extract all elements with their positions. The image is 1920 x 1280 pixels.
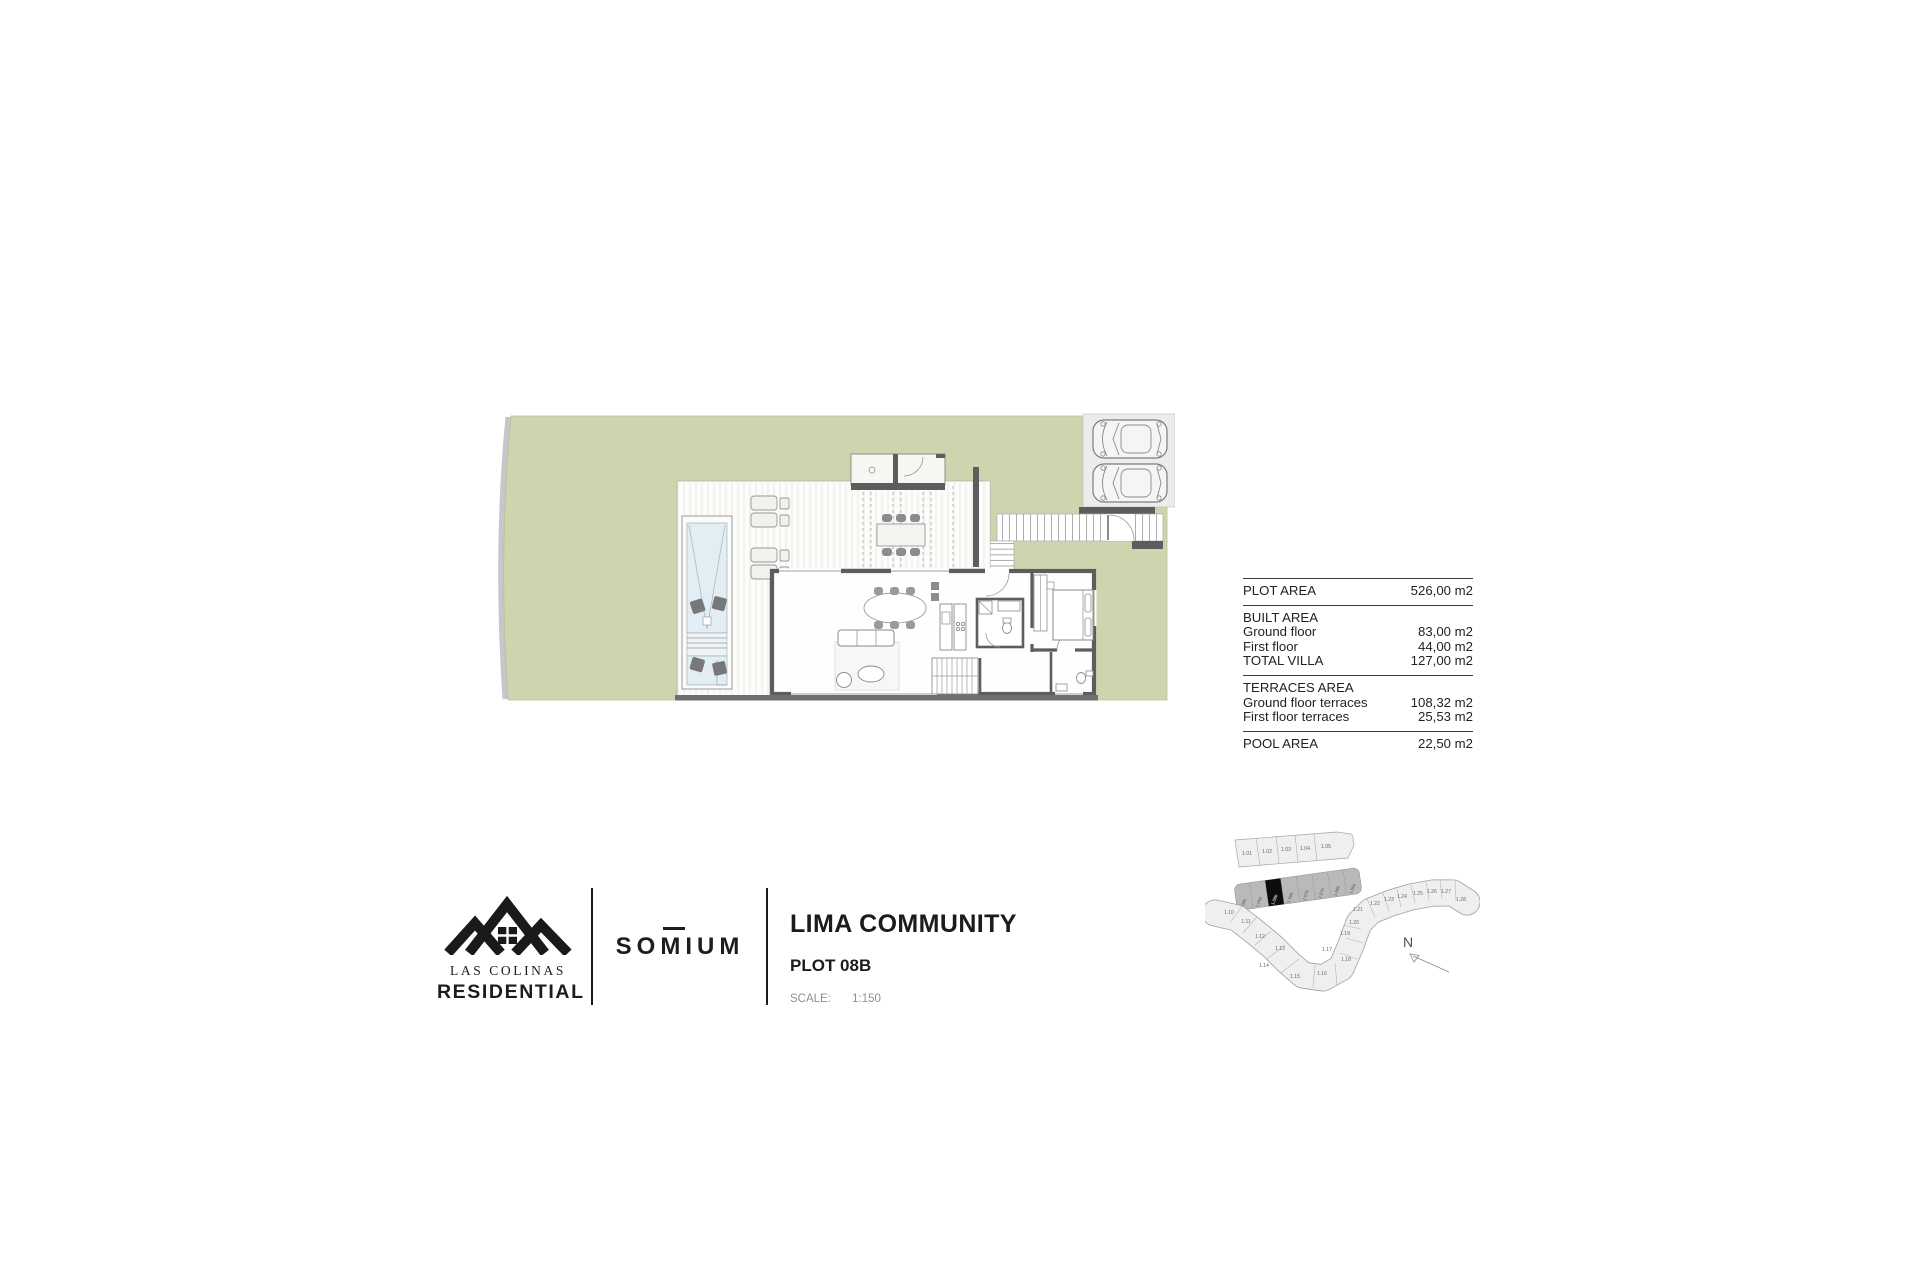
table-section-pool: POOL AREA 22,50 m2: [1243, 731, 1473, 758]
plot-label: 1.10: [1224, 910, 1234, 916]
row-value: 44,00 m2: [1418, 640, 1473, 655]
table-row: First floor terraces 25,53 m2: [1243, 710, 1473, 725]
plot-label: 1.26: [1427, 889, 1437, 895]
row-label: TERRACES AREA: [1243, 681, 1354, 696]
brand-las-colinas: LAS COLINAS: [437, 963, 579, 979]
plot-label: 1.11: [1241, 919, 1251, 925]
row-label: PLOT AREA: [1243, 584, 1316, 599]
plot-label: 1.25: [1413, 891, 1423, 897]
floor-plan: [495, 412, 1175, 704]
brand-residential: RESIDENTIAL: [437, 981, 579, 1004]
row-label: TOTAL VILLA: [1243, 654, 1323, 669]
plot-label: 1.21: [1353, 907, 1363, 913]
las-colinas-logo: LAS COLINAS RESIDENTIAL: [437, 891, 579, 1004]
north-arrow-icon: N: [1403, 934, 1449, 972]
outdoor-dining-set: [877, 514, 925, 556]
plot-label: 1.23: [1384, 897, 1394, 903]
stairs: [932, 658, 978, 694]
plot-label: 1.03: [1281, 847, 1291, 853]
table-row: Ground floor 83,00 m2: [1243, 625, 1473, 640]
house: [770, 569, 1097, 697]
row-value: 127,00 m2: [1411, 654, 1473, 669]
living-room-furniture: [835, 630, 899, 690]
somium-logo: SOMIUM: [600, 888, 760, 1005]
privacy-wall: [973, 467, 979, 567]
plot-label: 1.15: [1290, 974, 1300, 980]
table-row: TOTAL VILLA 127,00 m2: [1243, 654, 1473, 669]
row-label: Ground floor: [1243, 625, 1316, 640]
parking-area: [1083, 414, 1175, 507]
scale-row: SCALE: 1:150: [790, 993, 1017, 1005]
plot-label: 1.12: [1255, 934, 1265, 940]
row-value: 25,53 m2: [1418, 710, 1473, 725]
title-divider: [766, 888, 768, 1005]
outdoor-kitchen: [851, 454, 945, 490]
row-label: Ground floor terraces: [1243, 696, 1368, 711]
table-row: Ground floor terraces 108,32 m2: [1243, 696, 1473, 711]
plot-number: PLOT 08B: [790, 956, 1017, 976]
somium-wordmark: SOMIUM: [616, 933, 745, 960]
plot-label: 1.04: [1300, 846, 1310, 852]
table-row: BUILT AREA: [1243, 611, 1473, 626]
somium-macron: [663, 927, 685, 930]
plot-label: 1.18: [1341, 957, 1351, 963]
table-row: POOL AREA 22,50 m2: [1243, 737, 1473, 752]
row-label: First floor terraces: [1243, 710, 1349, 725]
row-value: 22,50 m2: [1418, 737, 1473, 752]
scale-value: 1:150: [852, 993, 881, 1005]
community-title: LIMA COMMUNITY: [790, 910, 1017, 939]
brand-divider: [591, 888, 593, 1005]
row-value: 526,00 m2: [1411, 584, 1473, 599]
table-row: First floor 44,00 m2: [1243, 640, 1473, 655]
plot-label: 1.19: [1340, 931, 1350, 937]
plot-label: 1.20: [1349, 920, 1359, 926]
site-map: 1.01 1.02 1.03 1.04 1.05 1.09b 1.09a 1.0…: [1205, 825, 1480, 1010]
plot-label: 1.24: [1397, 894, 1407, 900]
roofline-logo-icon: [444, 891, 572, 955]
table-section-built: BUILT AREA Ground floor 83,00 m2 First f…: [1243, 606, 1473, 675]
table-section-terraces: TERRACES AREA Ground floor terraces 108,…: [1243, 675, 1473, 731]
title-block: LIMA COMMUNITY PLOT 08B SCALE: 1:150: [790, 910, 1017, 1005]
plot-label: 1.22: [1370, 901, 1380, 907]
plot-label: 1.14: [1259, 963, 1269, 969]
areas-table: PLOT AREA 526,00 m2 BUILT AREA Ground fl…: [1243, 578, 1473, 757]
plot-label: 1.05: [1321, 844, 1331, 850]
plot-label: 1.27: [1441, 889, 1451, 895]
plot-label: 1.28: [1456, 897, 1466, 903]
table-row: PLOT AREA 526,00 m2: [1243, 584, 1473, 599]
row-label: First floor: [1243, 640, 1298, 655]
plot-label: 1.17: [1322, 947, 1332, 953]
plot-label: 1.02: [1262, 849, 1272, 855]
scale-label: SCALE:: [790, 993, 831, 1005]
row-label: POOL AREA: [1243, 737, 1318, 752]
table-row: TERRACES AREA: [1243, 681, 1473, 696]
base-wall: [675, 695, 1098, 701]
north-label: N: [1403, 934, 1413, 950]
plot-label: 1.13: [1275, 946, 1285, 952]
site-map-strip-row: 1.09b 1.09a 1.08b 1.08a 1.07b 1.07a 1.06…: [1234, 867, 1362, 911]
plot-label: 1.16: [1317, 971, 1327, 977]
car-icon: [1093, 420, 1167, 458]
plan-sheet-page: PLOT AREA 526,00 m2 BUILT AREA Ground fl…: [0, 0, 1920, 1280]
plot-label: 1.01: [1242, 851, 1252, 857]
car-icon: [1093, 464, 1167, 502]
table-section-plot: PLOT AREA 526,00 m2: [1243, 578, 1473, 606]
row-value: 83,00 m2: [1418, 625, 1473, 640]
row-value: 108,32 m2: [1411, 696, 1473, 711]
site-map-top-row: 1.01 1.02 1.03 1.04 1.05: [1235, 832, 1354, 867]
row-label: BUILT AREA: [1243, 611, 1318, 626]
